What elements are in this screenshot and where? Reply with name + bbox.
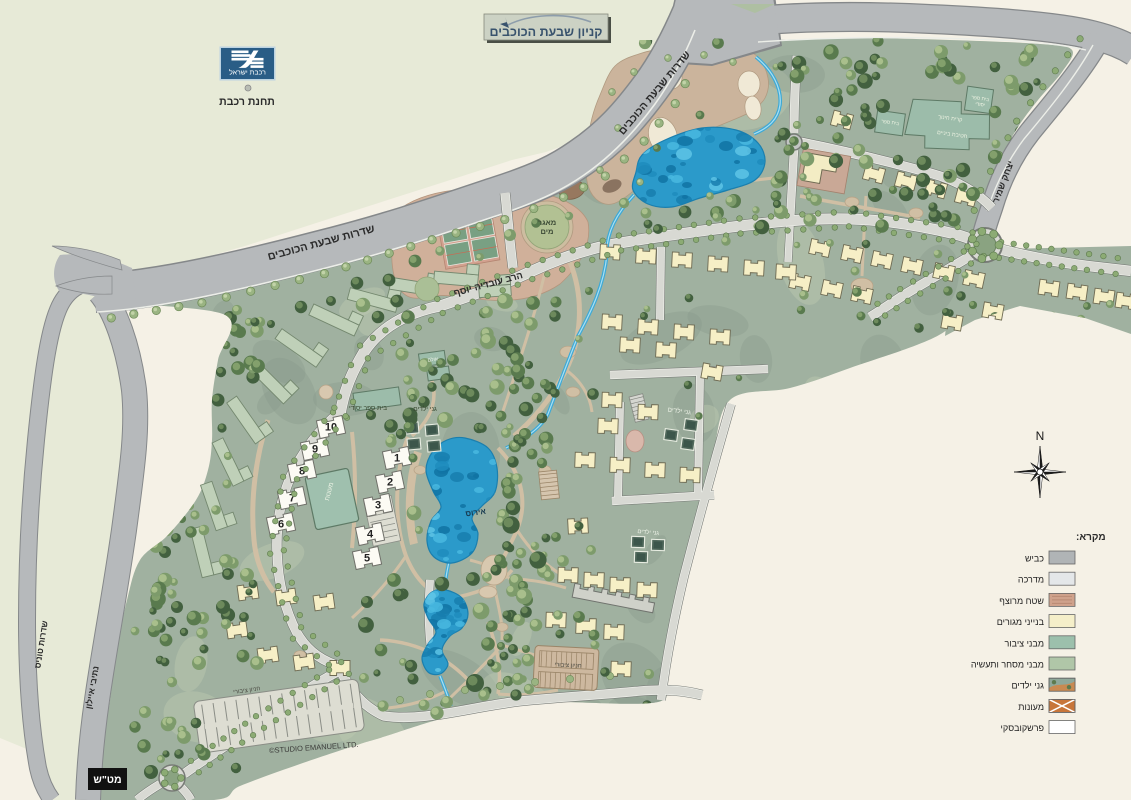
- svg-text:קניון שבעת הכוכבים: קניון שבעת הכוכבים: [490, 25, 603, 39]
- svg-text:N: N: [1036, 429, 1045, 443]
- svg-text:מט"ש: מט"ש: [93, 774, 121, 786]
- svg-text:מדרכה: מדרכה: [1018, 575, 1044, 585]
- svg-text:מבני מסחר ותעשיה: מבני מסחר ותעשיה: [971, 660, 1044, 670]
- svg-text:2: 2: [387, 477, 393, 489]
- svg-text:מעונות: מעונות: [1018, 702, 1044, 712]
- svg-text:גני ילדים: גני ילדים: [1011, 681, 1044, 691]
- svg-text:בית ספר יסודי: בית ספר יסודי: [349, 405, 387, 412]
- svg-text:בנייני מגורים: בנייני מגורים: [997, 617, 1045, 627]
- svg-text:רכבת ישראל: רכבת ישראל: [229, 69, 266, 77]
- svg-text:פרשקובסקי: פרשקובסקי: [1001, 723, 1044, 733]
- svg-text:מים: מים: [541, 227, 554, 236]
- svg-text:1: 1: [394, 453, 400, 465]
- svg-text:גני ילדים: גני ילדים: [413, 405, 437, 413]
- svg-text:3: 3: [375, 500, 381, 512]
- svg-text:5: 5: [364, 553, 370, 565]
- svg-text:כביש: כביש: [1025, 554, 1044, 564]
- svg-text:תחנת רכבת: תחנת רכבת: [219, 96, 275, 108]
- svg-text:שטח מרוצף: שטח מרוצף: [999, 596, 1044, 606]
- svg-text:מבני ציבור: מבני ציבור: [1005, 638, 1045, 648]
- svg-text:4: 4: [367, 529, 374, 541]
- svg-text:מאגר: מאגר: [538, 218, 556, 227]
- svg-text:מקרא:: מקרא:: [1076, 532, 1106, 543]
- svg-text:6: 6: [278, 519, 284, 531]
